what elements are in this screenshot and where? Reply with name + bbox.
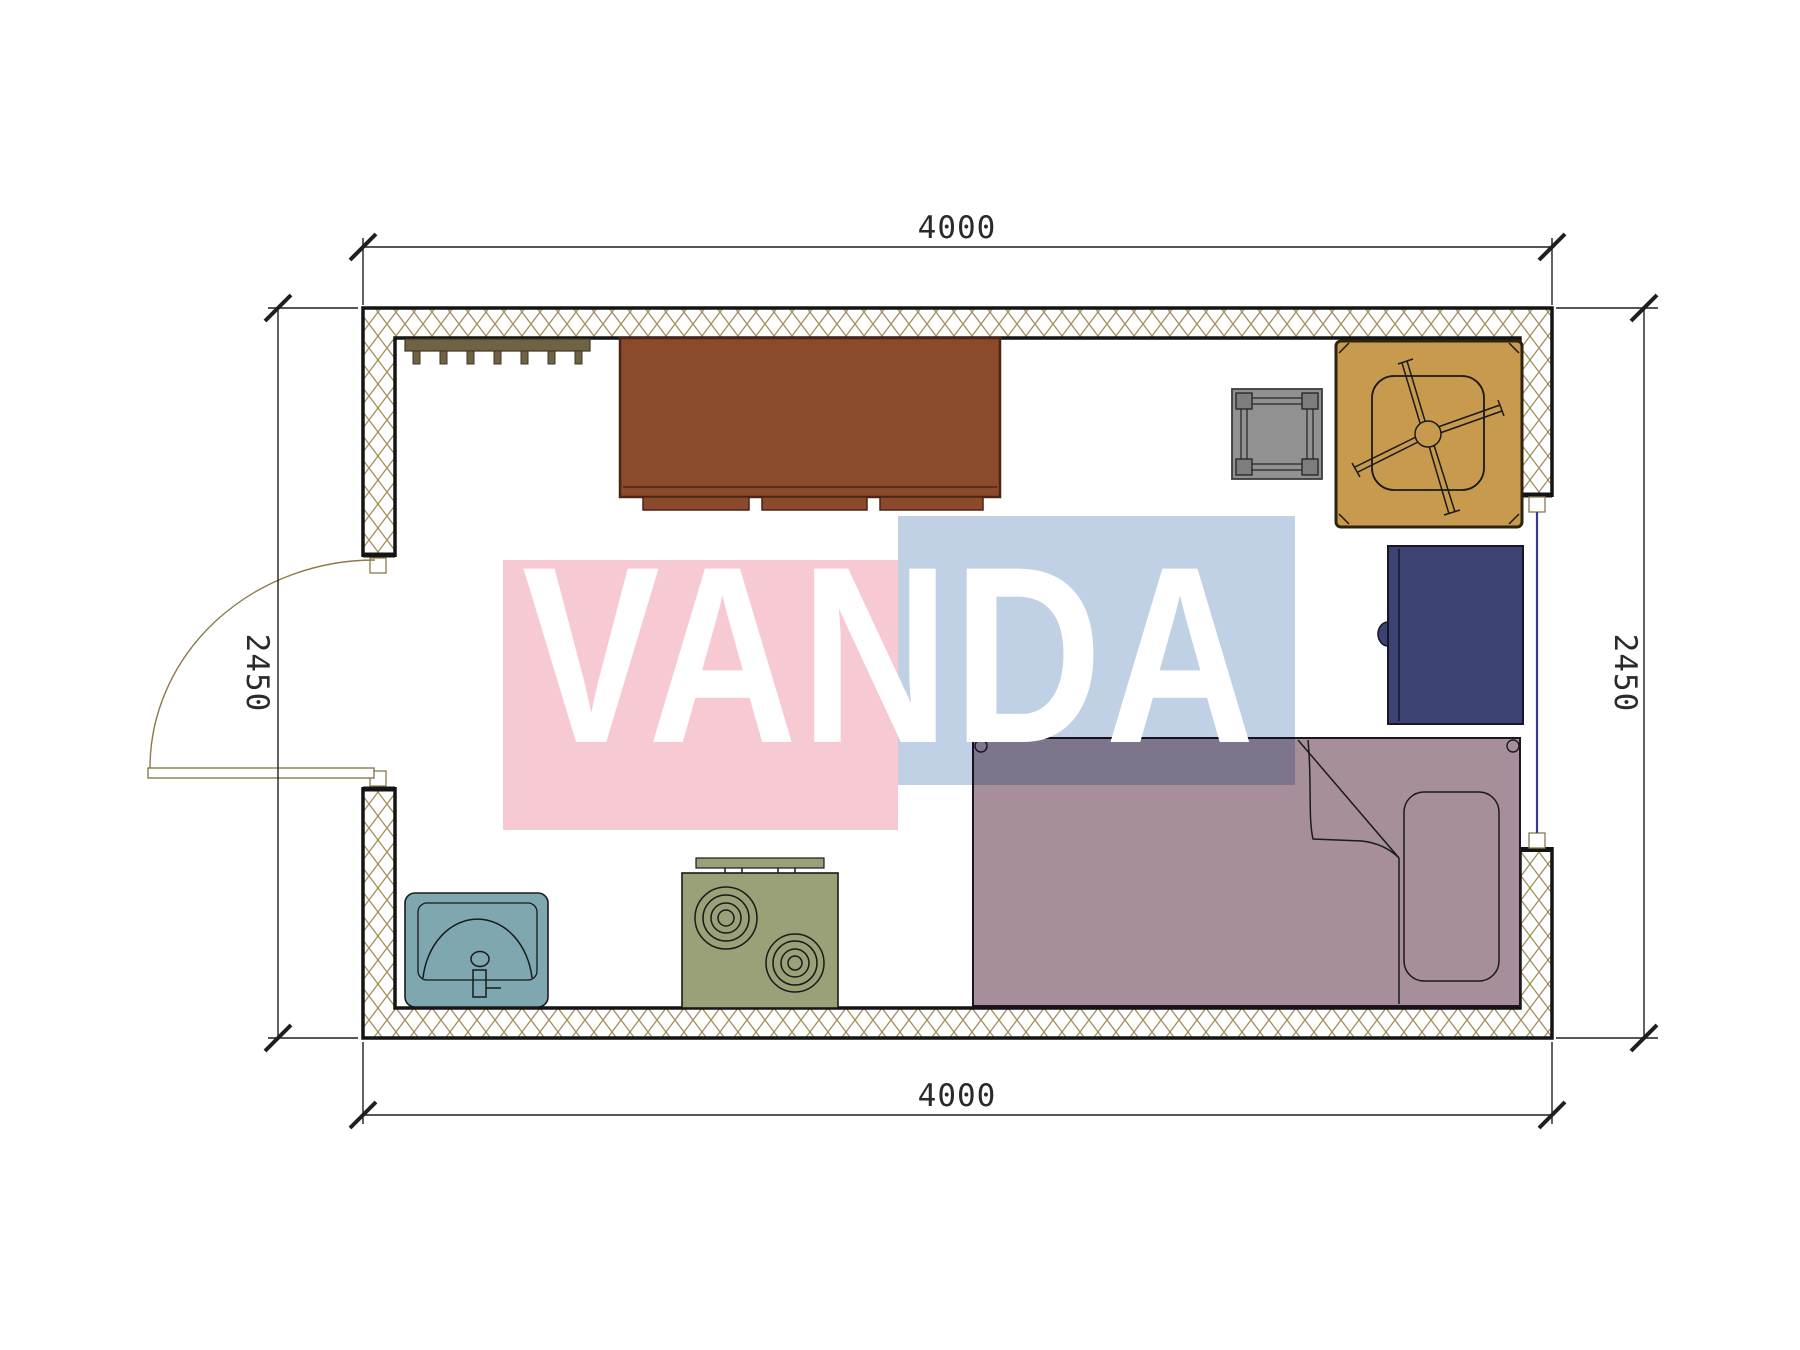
dim-left: 2450 xyxy=(239,634,275,713)
desk xyxy=(620,338,1000,510)
watermark: VANDA xyxy=(503,513,1295,830)
floor-plan-drawing: 4000 4000 2450 2450 VANDA xyxy=(0,0,1800,1350)
wall-cap xyxy=(363,787,395,792)
stool xyxy=(1232,389,1322,479)
dim-right: 2450 xyxy=(1607,634,1643,713)
desk-foot xyxy=(880,497,983,510)
refrigerator xyxy=(1378,546,1523,724)
coat-rack xyxy=(405,339,590,364)
wall-cap xyxy=(363,553,395,558)
stove xyxy=(682,858,838,1008)
dim-bottom: 4000 xyxy=(918,1078,997,1114)
dim-top: 4000 xyxy=(918,210,997,246)
door-leaf xyxy=(148,768,374,778)
door-opening xyxy=(359,557,399,787)
office-chair xyxy=(1336,341,1522,527)
watermark-text: VANDA xyxy=(522,513,1258,795)
coat-rack-hooks xyxy=(413,351,582,364)
desk-foot xyxy=(762,497,867,510)
pillow xyxy=(1404,792,1499,981)
bed-post xyxy=(1507,740,1519,752)
window-jamb xyxy=(1529,833,1545,848)
floor-plan-page: 4000 4000 2450 2450 VANDA xyxy=(0,0,1800,1350)
stove-control-bar xyxy=(696,858,824,868)
sink xyxy=(405,893,548,1007)
window-jamb xyxy=(1529,497,1545,512)
desk-foot xyxy=(643,497,749,510)
